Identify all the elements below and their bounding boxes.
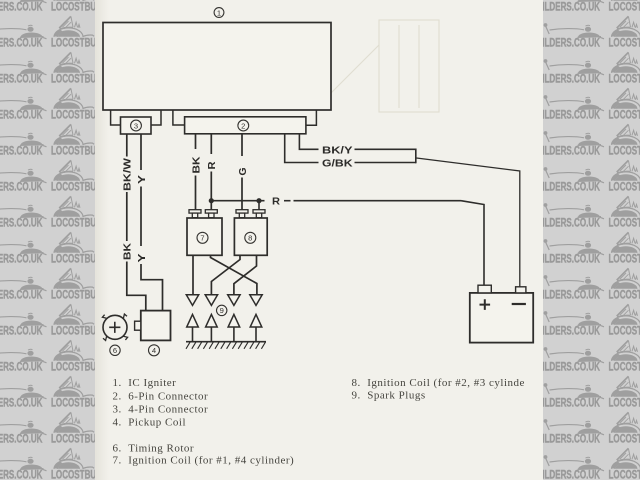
svg-text:BK/W: BK/W (122, 158, 134, 191)
svg-text:2: 2 (241, 121, 245, 130)
svg-text:BK: BK (122, 243, 134, 260)
svg-text:2. 6-Pin Connector: 2. 6-Pin Connector (113, 391, 209, 403)
svg-text:1: 1 (217, 8, 221, 17)
svg-text:1. IC Igniter: 1. IC Igniter (113, 377, 177, 389)
svg-text:8. Ignition Coil (for #2, #3: 8. Ignition Coil (for #2, #3 cylinde (352, 377, 525, 389)
svg-text:3: 3 (134, 121, 138, 130)
svg-text:BK/Y: BK/Y (322, 144, 353, 156)
svg-text:7: 7 (200, 234, 204, 243)
svg-text:G: G (237, 168, 249, 176)
svg-text:3. 4-Pin Connector: 3. 4-Pin Connector (113, 404, 209, 416)
svg-text:4. Pickup Coil: 4. Pickup Coil (113, 416, 187, 428)
svg-text:9. Spark Plugs: 9. Spark Plugs (352, 390, 426, 402)
svg-text:G/BK: G/BK (322, 158, 353, 170)
svg-text:7. Ignition Coil (for #1, #4: 7. Ignition Coil (for #1, #4 cylinder) (113, 455, 295, 467)
svg-text:R: R (272, 196, 280, 208)
svg-text:8: 8 (248, 234, 252, 243)
svg-text:BK: BK (190, 156, 202, 173)
svg-text:Y: Y (136, 175, 148, 184)
svg-text:6: 6 (113, 346, 117, 355)
svg-text:4: 4 (152, 346, 156, 355)
svg-text:6. Timing Rotor: 6. Timing Rotor (113, 443, 195, 455)
svg-text:Y: Y (136, 254, 148, 263)
svg-text:R: R (206, 161, 218, 169)
svg-text:9: 9 (220, 306, 224, 315)
